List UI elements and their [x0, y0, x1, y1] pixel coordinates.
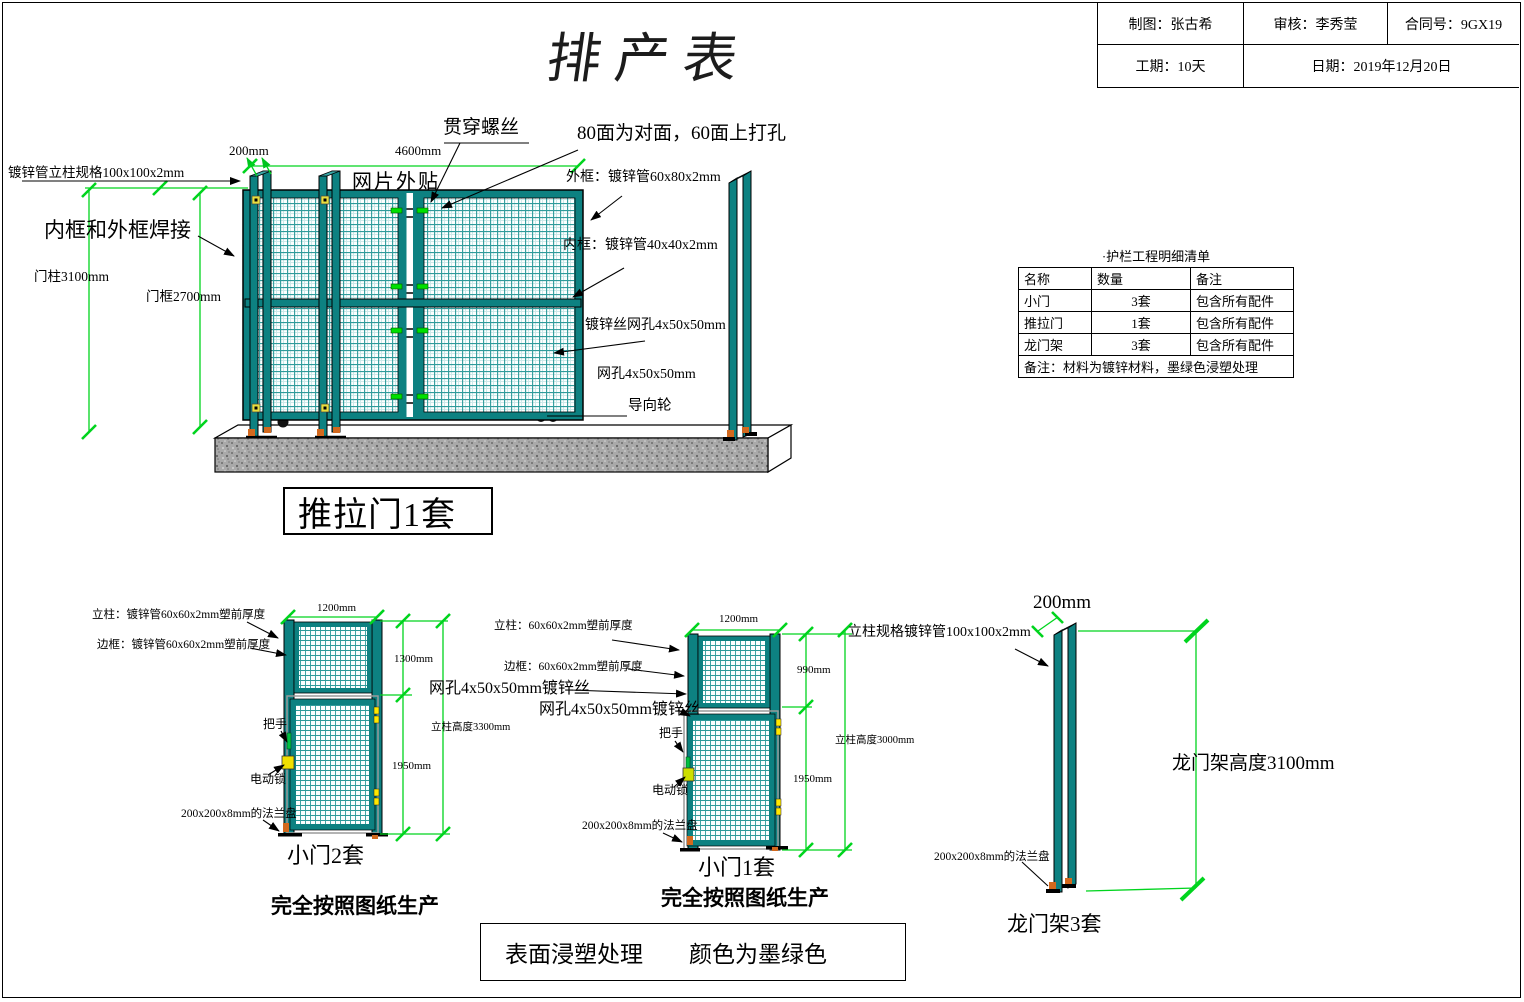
gantry-post-spec: 立柱规格镀锌管100x100x2mm [848, 625, 1031, 640]
label-outer-frame: 外框：镀锌管60x80x2mm [566, 170, 721, 185]
gantry-height-label: 龙门架高度3100mm [1172, 754, 1335, 775]
end-post [723, 171, 757, 441]
door1-post-spec: 立柱：60x60x2mm塑前厚度 [494, 620, 633, 633]
parts-table-header-row: 名称 数量 备注 [1019, 268, 1294, 290]
title-block-contract: 合同号：9GX19 [1388, 3, 1519, 45]
cell-qty: 1套 [1092, 312, 1191, 334]
label-mesh-wire: 镀锌丝网孔4x50x50mm [585, 318, 726, 333]
title-block-duration: 工期：10天 [1098, 45, 1244, 87]
cell-name: 推拉门 [1019, 312, 1092, 334]
door1-dim-width: 1200mm [719, 613, 758, 625]
door1-handle-label: 把手 [659, 727, 683, 740]
parts-table-title: ·护栏工程明细清单 [1018, 246, 1294, 265]
label-door-post-height: 门柱3100mm [34, 270, 109, 285]
cad-sheet: 排产表 制图：张古希 审核：李秀莹 合同号：9GX19 工期：10天 日期：20… [0, 0, 1524, 1002]
door2-note: 完全按照图纸生产 [271, 895, 439, 918]
door1-dim-bottom: 1950mm [793, 773, 832, 785]
cell-name: 龙门架 [1019, 334, 1092, 356]
door1-mesh-lower: 网孔4x50x50mm镀锌丝 [539, 701, 700, 719]
page-title: 排产表 [542, 14, 757, 93]
parts-table: ·护栏工程明细清单 名称 数量 备注 小门 3套 包含所有配件 推拉门 1套 包… [1018, 246, 1294, 378]
concrete-base [215, 425, 791, 472]
label-galvanized-post-spec: 镀锌管立柱规格100x100x2mm [8, 166, 184, 181]
door1-note: 完全按照图纸生产 [661, 887, 829, 910]
door1-caption: 小门1套 [698, 856, 775, 880]
label-inner-frame: 内框：镀锌管40x40x2mm [563, 238, 718, 253]
cell-note: 包含所有配件 [1191, 290, 1294, 312]
cell-qty: 3套 [1092, 334, 1191, 356]
door2-dim-bottom: 1950mm [392, 760, 431, 772]
table-footer-row: 备注：材料为镀锌材料，墨绿色浸塑处理 [1019, 356, 1294, 378]
door2-lock-label: 电动锁 [250, 773, 286, 786]
door2-frame-spec: 边框：镀锌管60x60x2mm塑前厚度 [97, 639, 270, 652]
table-footer-note: 备注：材料为镀锌材料，墨绿色浸塑处理 [1019, 356, 1294, 378]
dim-gate-width: 4600mm [395, 144, 441, 158]
dim-post-width: 200mm [229, 144, 269, 158]
door2-post-spec: 立柱：镀锌管60x60x2mm塑前厚度 [92, 609, 265, 622]
main-caption-box: 推拉门1套 [283, 487, 493, 535]
table-row: 推拉门 1套 包含所有配件 [1019, 312, 1294, 334]
label-through-screw: 贯穿螺丝 [443, 118, 519, 139]
cell-name: 小门 [1019, 290, 1092, 312]
label-weld-note: 内框和外框焊接 [44, 219, 191, 242]
door2-handle-label: 把手 [263, 718, 287, 731]
door2-post-height: 立柱高度3300mm [431, 722, 510, 734]
title-block-drafter: 制图：张古希 [1098, 3, 1244, 45]
col-name: 名称 [1019, 268, 1092, 290]
title-block: 制图：张古希 审核：李秀莹 合同号：9GX19 工期：10天 日期：2019年1… [1097, 3, 1519, 88]
sliding-gate [243, 190, 583, 420]
title-block-date: 日期：2019年12月20日 [1244, 45, 1519, 87]
door1-dim-top: 990mm [797, 664, 831, 676]
main-caption: 推拉门1套 [285, 487, 456, 536]
gantry-dim-width: 200mm [1033, 593, 1091, 614]
col-qty: 数量 [1092, 268, 1191, 290]
gantry-flange-label: 200x200x8mm的法兰盘 [934, 851, 1050, 864]
cell-note: 包含所有配件 [1191, 334, 1294, 356]
cell-qty: 3套 [1092, 290, 1191, 312]
footer-note-box: 表面浸塑处理 颜色为墨绿色 [480, 923, 906, 981]
label-drill-note: 80面为对面，60面上打孔 [577, 124, 786, 145]
door1-mesh-upper: 网孔4x50x50mm镀锌丝 [429, 680, 590, 698]
label-mesh-hole: 网孔4x50x50mm [597, 367, 696, 382]
table-row: 龙门架 3套 包含所有配件 [1019, 334, 1294, 356]
door2-dim-width: 1200mm [317, 602, 356, 614]
table-row: 小门 3套 包含所有配件 [1019, 290, 1294, 312]
door1-post-height: 立柱高度3000mm [835, 735, 914, 747]
label-guide-wheel: 导向轮 [628, 399, 672, 415]
label-door-frame-height: 门框2700mm [146, 290, 221, 305]
door2-flange-label: 200x200x8mm的法兰盘 [181, 808, 297, 821]
door2-dim-top: 1300mm [394, 653, 433, 665]
door1-frame-spec: 边框：60x60x2mm塑前厚度 [504, 661, 643, 674]
door1-lock-label: 电动锁 [652, 784, 688, 797]
cell-note: 包含所有配件 [1191, 312, 1294, 334]
title-block-reviewer: 审核：李秀莹 [1244, 3, 1388, 45]
col-note: 备注 [1191, 268, 1294, 290]
footer-note: 表面浸塑处理 颜色为墨绿色 [481, 935, 827, 969]
door2-caption: 小门2套 [287, 844, 364, 868]
gantry-caption: 龙门架3套 [1007, 913, 1102, 936]
label-mesh-attach: 网片外贴 [352, 171, 440, 193]
door1-flange-label: 200x200x8mm的法兰盘 [582, 820, 698, 833]
